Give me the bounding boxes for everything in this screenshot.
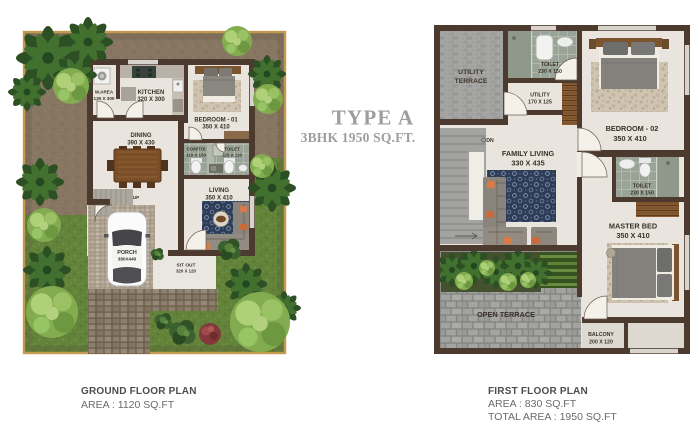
svg-text:LIVING: LIVING (209, 188, 229, 194)
svg-text:KITCHEN: KITCHEN (138, 90, 165, 96)
svg-text:COM/TOI: COM/TOI (187, 147, 206, 152)
svg-text:PORCH: PORCH (117, 250, 137, 256)
svg-text:330 X 435: 330 X 435 (511, 159, 544, 168)
svg-text:UP: UP (133, 195, 139, 200)
svg-text:TOILET: TOILET (633, 184, 652, 190)
svg-text:AREA : 830 SQ.FT: AREA : 830 SQ.FT (488, 398, 577, 410)
svg-text:UTILITY: UTILITY (458, 69, 484, 76)
svg-text:TOTAL AREA : 1950 SQ.FT: TOTAL AREA : 1950 SQ.FT (488, 411, 617, 423)
svg-text:FAMILY LIVING: FAMILY LIVING (502, 149, 555, 158)
svg-text:OPEN TERRACE: OPEN TERRACE (477, 310, 535, 319)
svg-text:350 X 410: 350 X 410 (202, 125, 230, 131)
svg-text:110 X 150: 110 X 150 (186, 153, 206, 158)
svg-text:320 X 120: 320 X 120 (176, 269, 197, 274)
svg-text:200 X 120: 200 X 120 (589, 340, 613, 346)
svg-text:230 X 150: 230 X 150 (630, 191, 654, 197)
svg-text:350 X 410: 350 X 410 (613, 134, 646, 143)
svg-text:390 X 430: 390 X 430 (127, 141, 155, 147)
svg-text:BEDROOM - 01: BEDROOM - 01 (194, 118, 238, 124)
svg-text:TOILET: TOILET (541, 62, 560, 68)
svg-text:AREA : 1120 SQ.FT: AREA : 1120 SQ.FT (81, 399, 175, 411)
svg-text:UTILITY: UTILITY (530, 93, 550, 99)
svg-text:W.AREA: W.AREA (95, 90, 114, 95)
svg-text:DINING: DINING (131, 133, 152, 139)
svg-text:350 X 410: 350 X 410 (616, 231, 649, 240)
svg-text:DN: DN (486, 138, 494, 144)
svg-text:BEDROOM - 02: BEDROOM - 02 (606, 124, 659, 133)
svg-text:230 X 150: 230 X 150 (538, 69, 562, 75)
svg-text:350 X 410: 350 X 410 (205, 196, 233, 202)
svg-text:3BHK 1950 SQ.FT.: 3BHK 1950 SQ.FT. (301, 130, 416, 145)
svg-text:BALCONY: BALCONY (588, 332, 614, 338)
svg-text:TERRACE: TERRACE (455, 78, 488, 85)
svg-text:MASTER BED: MASTER BED (609, 222, 657, 231)
svg-text:TYPE A: TYPE A (332, 106, 414, 130)
svg-text:GROUND FLOOR PLAN: GROUND FLOOR PLAN (81, 386, 197, 397)
svg-text:FIRST FLOOR PLAN: FIRST FLOOR PLAN (488, 386, 588, 397)
svg-text:380X440: 380X440 (118, 257, 137, 262)
svg-text:135 X 300: 135 X 300 (94, 96, 115, 101)
svg-text:170 X 125: 170 X 125 (528, 100, 552, 106)
svg-text:320 X 300: 320 X 300 (137, 97, 165, 103)
svg-text:225 X 110: 225 X 110 (222, 153, 242, 158)
svg-text:TOILET: TOILET (224, 147, 240, 152)
